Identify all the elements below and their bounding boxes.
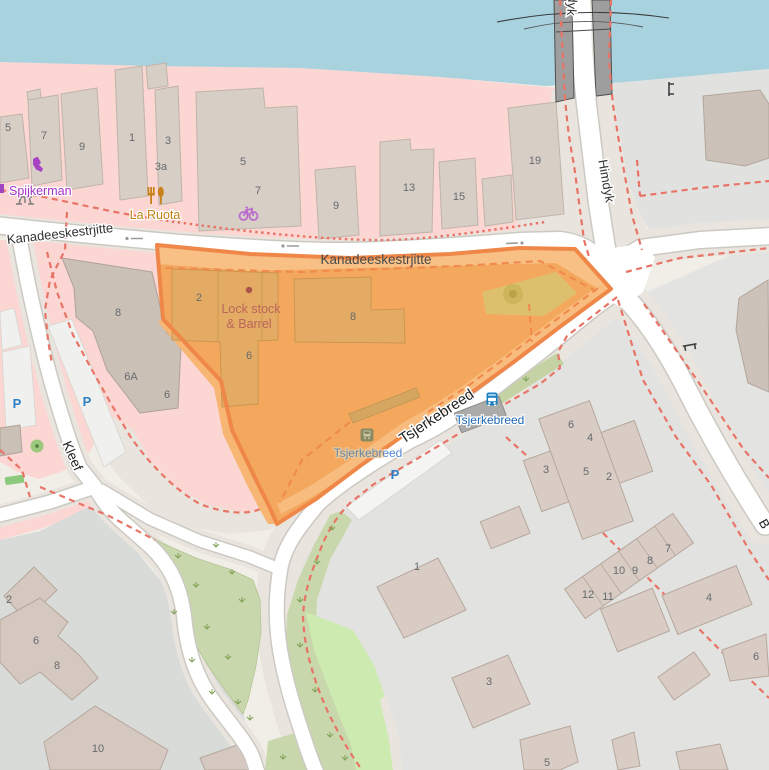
svg-text:3a: 3a (155, 161, 168, 173)
svg-text:7: 7 (255, 185, 261, 197)
svg-text:10: 10 (613, 565, 625, 577)
svg-text:6: 6 (753, 651, 759, 663)
svg-text:13: 13 (403, 182, 415, 194)
svg-text:1: 1 (129, 132, 135, 144)
svg-text:5: 5 (5, 122, 11, 134)
svg-text:9: 9 (79, 141, 85, 153)
svg-text:2: 2 (196, 292, 202, 304)
svg-text:5: 5 (544, 757, 550, 769)
svg-text:9: 9 (632, 565, 638, 577)
svg-text:10: 10 (92, 743, 104, 755)
svg-text:19: 19 (529, 155, 541, 167)
svg-text:6A: 6A (124, 371, 138, 383)
svg-text:7: 7 (41, 130, 47, 142)
svg-text:15: 15 (453, 191, 465, 203)
svg-text:2: 2 (6, 594, 12, 606)
svg-text:6: 6 (164, 389, 170, 401)
svg-text:1: 1 (414, 561, 420, 573)
svg-text:Tsjerkebreed: Tsjerkebreed (456, 413, 525, 427)
svg-text:P: P (391, 467, 400, 482)
svg-text:Lock stock: Lock stock (221, 302, 281, 316)
svg-text:12: 12 (582, 589, 594, 601)
svg-text:& Barrel: & Barrel (226, 317, 271, 331)
svg-text:5: 5 (240, 156, 246, 168)
svg-text:4: 4 (587, 432, 593, 444)
svg-text:5: 5 (583, 466, 589, 478)
svg-text:6: 6 (33, 635, 39, 647)
svg-text:La Ruota: La Ruota (130, 208, 181, 222)
svg-text:7: 7 (665, 543, 671, 555)
svg-text:8: 8 (115, 307, 121, 319)
svg-text:Spijkerman: Spijkerman (9, 184, 72, 198)
svg-text:3: 3 (165, 135, 171, 147)
svg-text:9: 9 (333, 200, 339, 212)
svg-text:3: 3 (543, 464, 549, 476)
svg-text:2: 2 (606, 471, 612, 483)
svg-text:6: 6 (246, 350, 252, 362)
svg-text:P: P (13, 396, 22, 411)
svg-text:P: P (83, 394, 92, 409)
svg-text:mdyk: mdyk (564, 0, 581, 17)
svg-text:8: 8 (350, 311, 356, 323)
svg-text:4: 4 (706, 592, 712, 604)
svg-text:11: 11 (602, 591, 613, 603)
svg-text:6: 6 (568, 419, 574, 431)
svg-text:8: 8 (54, 660, 60, 672)
svg-text:8: 8 (647, 555, 653, 567)
svg-text:3: 3 (486, 676, 492, 688)
svg-text:Kanadeeskestrjitte: Kanadeeskestrjitte (320, 252, 431, 267)
